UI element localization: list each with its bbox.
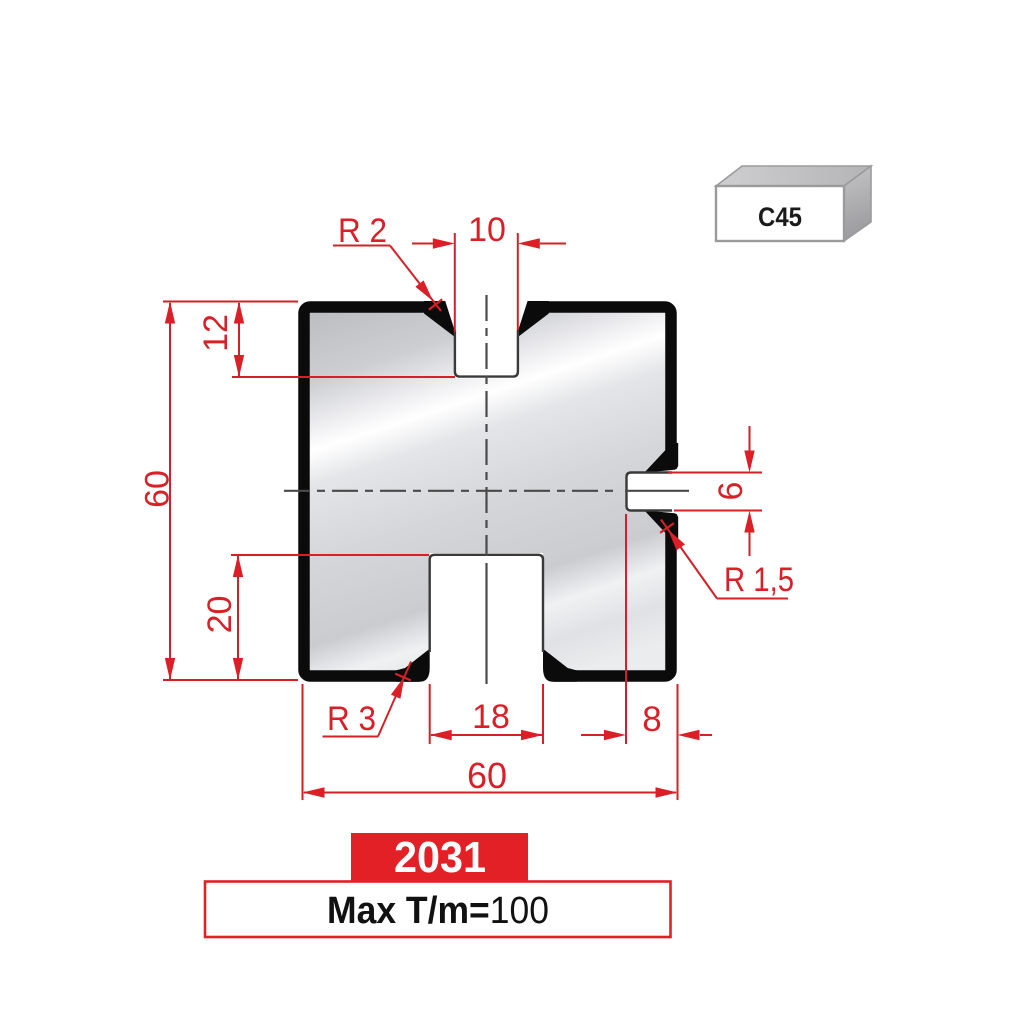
svg-text:12: 12 [197, 314, 235, 352]
svg-text:18: 18 [472, 698, 510, 736]
svg-text:20: 20 [201, 596, 239, 634]
svg-text:C45: C45 [758, 202, 802, 232]
svg-text:Max T/m=100: Max T/m=100 [327, 890, 549, 932]
svg-text:60: 60 [467, 755, 507, 796]
svg-text:8: 8 [642, 700, 661, 739]
svg-text:6: 6 [712, 482, 750, 501]
svg-text:2031: 2031 [394, 833, 486, 882]
svg-text:60: 60 [139, 470, 177, 508]
svg-text:R 1,5: R 1,5 [724, 561, 794, 599]
svg-text:R 3: R 3 [327, 700, 376, 738]
svg-text:10: 10 [468, 211, 506, 249]
svg-text:R 2: R 2 [338, 212, 387, 250]
